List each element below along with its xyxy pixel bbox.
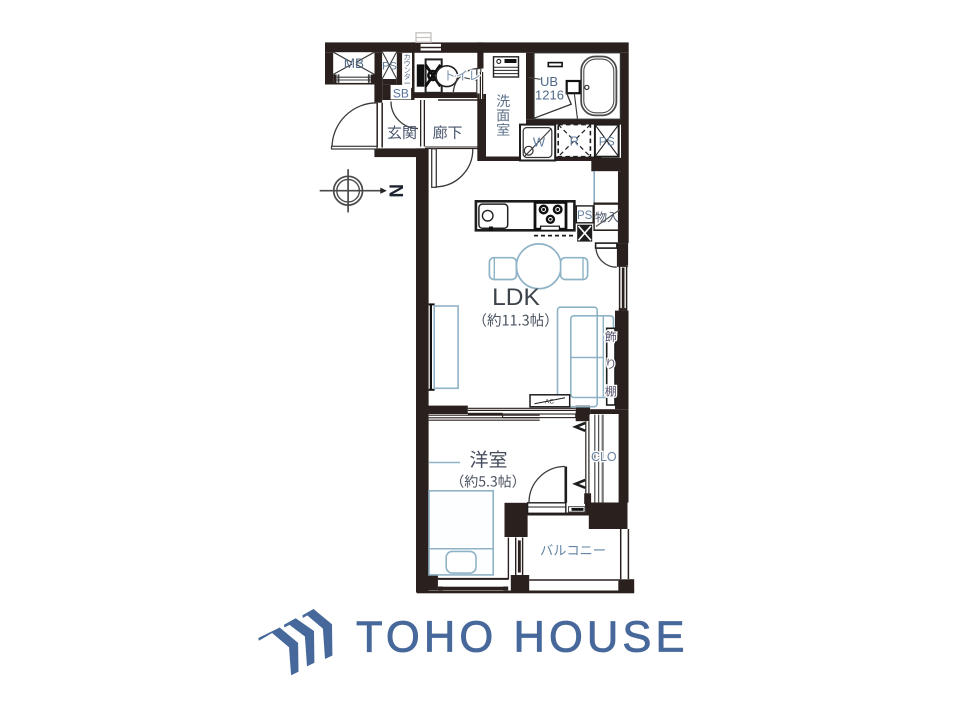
svg-text:PS: PS: [577, 210, 593, 222]
svg-text:PS: PS: [382, 61, 397, 73]
svg-text:MB: MB: [344, 56, 364, 71]
svg-text:SB: SB: [393, 87, 409, 101]
svg-text:R: R: [570, 134, 579, 149]
svg-text:LDK: LDK: [492, 284, 540, 311]
svg-text:TOHO HOUSE: TOHO HOUSE: [356, 614, 689, 662]
svg-text:W: W: [533, 135, 546, 150]
svg-text:CLO: CLO: [591, 450, 617, 464]
svg-text:1216: 1216: [535, 88, 564, 103]
svg-text:N: N: [387, 184, 408, 198]
svg-text:AC: AC: [545, 399, 554, 406]
svg-text:PS: PS: [599, 135, 615, 149]
